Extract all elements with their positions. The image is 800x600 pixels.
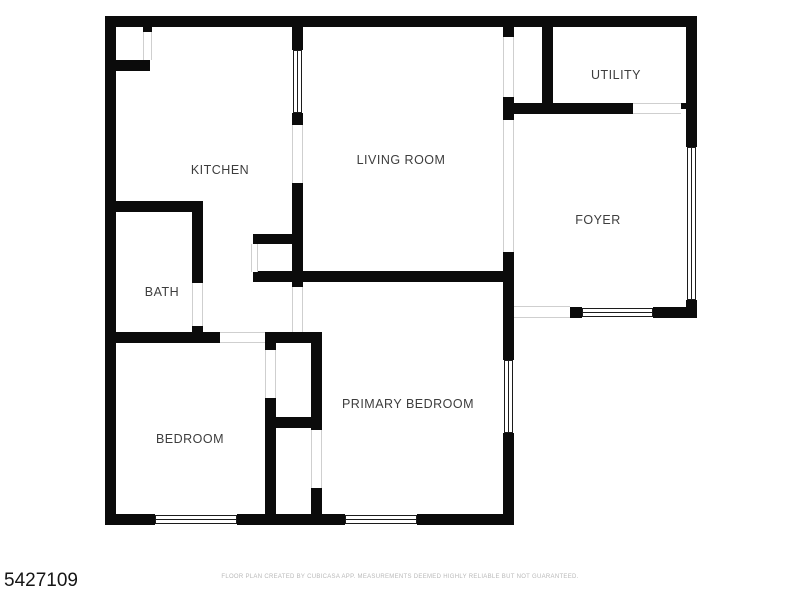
door-opening: [220, 332, 265, 343]
wall-segment: [292, 27, 303, 50]
door-opening: [292, 125, 303, 183]
wall-segment: [686, 16, 697, 147]
door-opening: [192, 283, 203, 326]
window-pane-line: [297, 51, 298, 112]
door-opening: [633, 103, 681, 114]
wall-segment: [253, 234, 303, 244]
door-opening: [311, 430, 322, 488]
disclaimer-text: FLOOR PLAN CREATED BY CUBICASA APP. MEAS…: [0, 574, 800, 580]
door-opening: [503, 120, 514, 252]
room-label-bath: BATH: [145, 285, 179, 299]
wall-segment: [105, 16, 116, 525]
wall-segment: [503, 27, 514, 37]
wall-segment: [105, 514, 155, 525]
window: [582, 308, 653, 317]
room-label-primary-bedroom: PRIMARY BEDROOM: [342, 397, 474, 411]
window-pane-line: [508, 361, 509, 432]
wall-segment: [105, 16, 697, 27]
wall-segment: [265, 332, 276, 350]
room-label-bedroom: BEDROOM: [156, 432, 224, 446]
wall-segment: [105, 332, 220, 343]
floorplan-canvas: KITCHENLIVING ROOMUTILITYFOYERBATHBEDROO…: [0, 0, 800, 600]
door-opening: [514, 306, 570, 318]
window: [345, 515, 417, 524]
door-opening: [251, 244, 258, 272]
room-label-kitchen: KITCHEN: [191, 163, 249, 177]
window: [687, 147, 696, 300]
wall-segment: [116, 60, 150, 71]
window-pane-line: [346, 519, 416, 520]
wall-segment: [681, 103, 686, 109]
door-opening: [292, 287, 303, 332]
wall-segment: [237, 514, 345, 525]
window: [155, 515, 237, 524]
door-opening: [265, 350, 276, 398]
wall-segment: [265, 417, 322, 428]
wall-segment: [311, 488, 322, 525]
window-pane-line: [583, 312, 652, 313]
room-label-living-room: LIVING ROOM: [357, 153, 446, 167]
wall-segment: [653, 307, 697, 318]
wall-segment: [570, 307, 582, 318]
wall-segment: [253, 271, 514, 282]
wall-segment: [116, 201, 203, 212]
wall-segment: [311, 332, 322, 430]
wall-segment: [503, 252, 514, 360]
wall-segment: [292, 113, 303, 125]
window: [504, 360, 513, 433]
wall-segment: [503, 103, 633, 114]
wall-segment: [503, 97, 514, 120]
window-pane-line: [156, 519, 236, 520]
window-pane-line: [691, 148, 692, 299]
door-opening: [503, 37, 514, 97]
room-label-foyer: FOYER: [575, 213, 621, 227]
wall-segment: [542, 27, 553, 114]
wall-segment: [192, 212, 203, 283]
door-opening: [143, 32, 152, 60]
floorplan-image: KITCHENLIVING ROOMUTILITYFOYERBATHBEDROO…: [0, 0, 800, 600]
room-label-utility: UTILITY: [591, 68, 641, 82]
window: [293, 50, 302, 113]
wall-segment: [417, 514, 514, 525]
wall-segment: [503, 433, 514, 525]
